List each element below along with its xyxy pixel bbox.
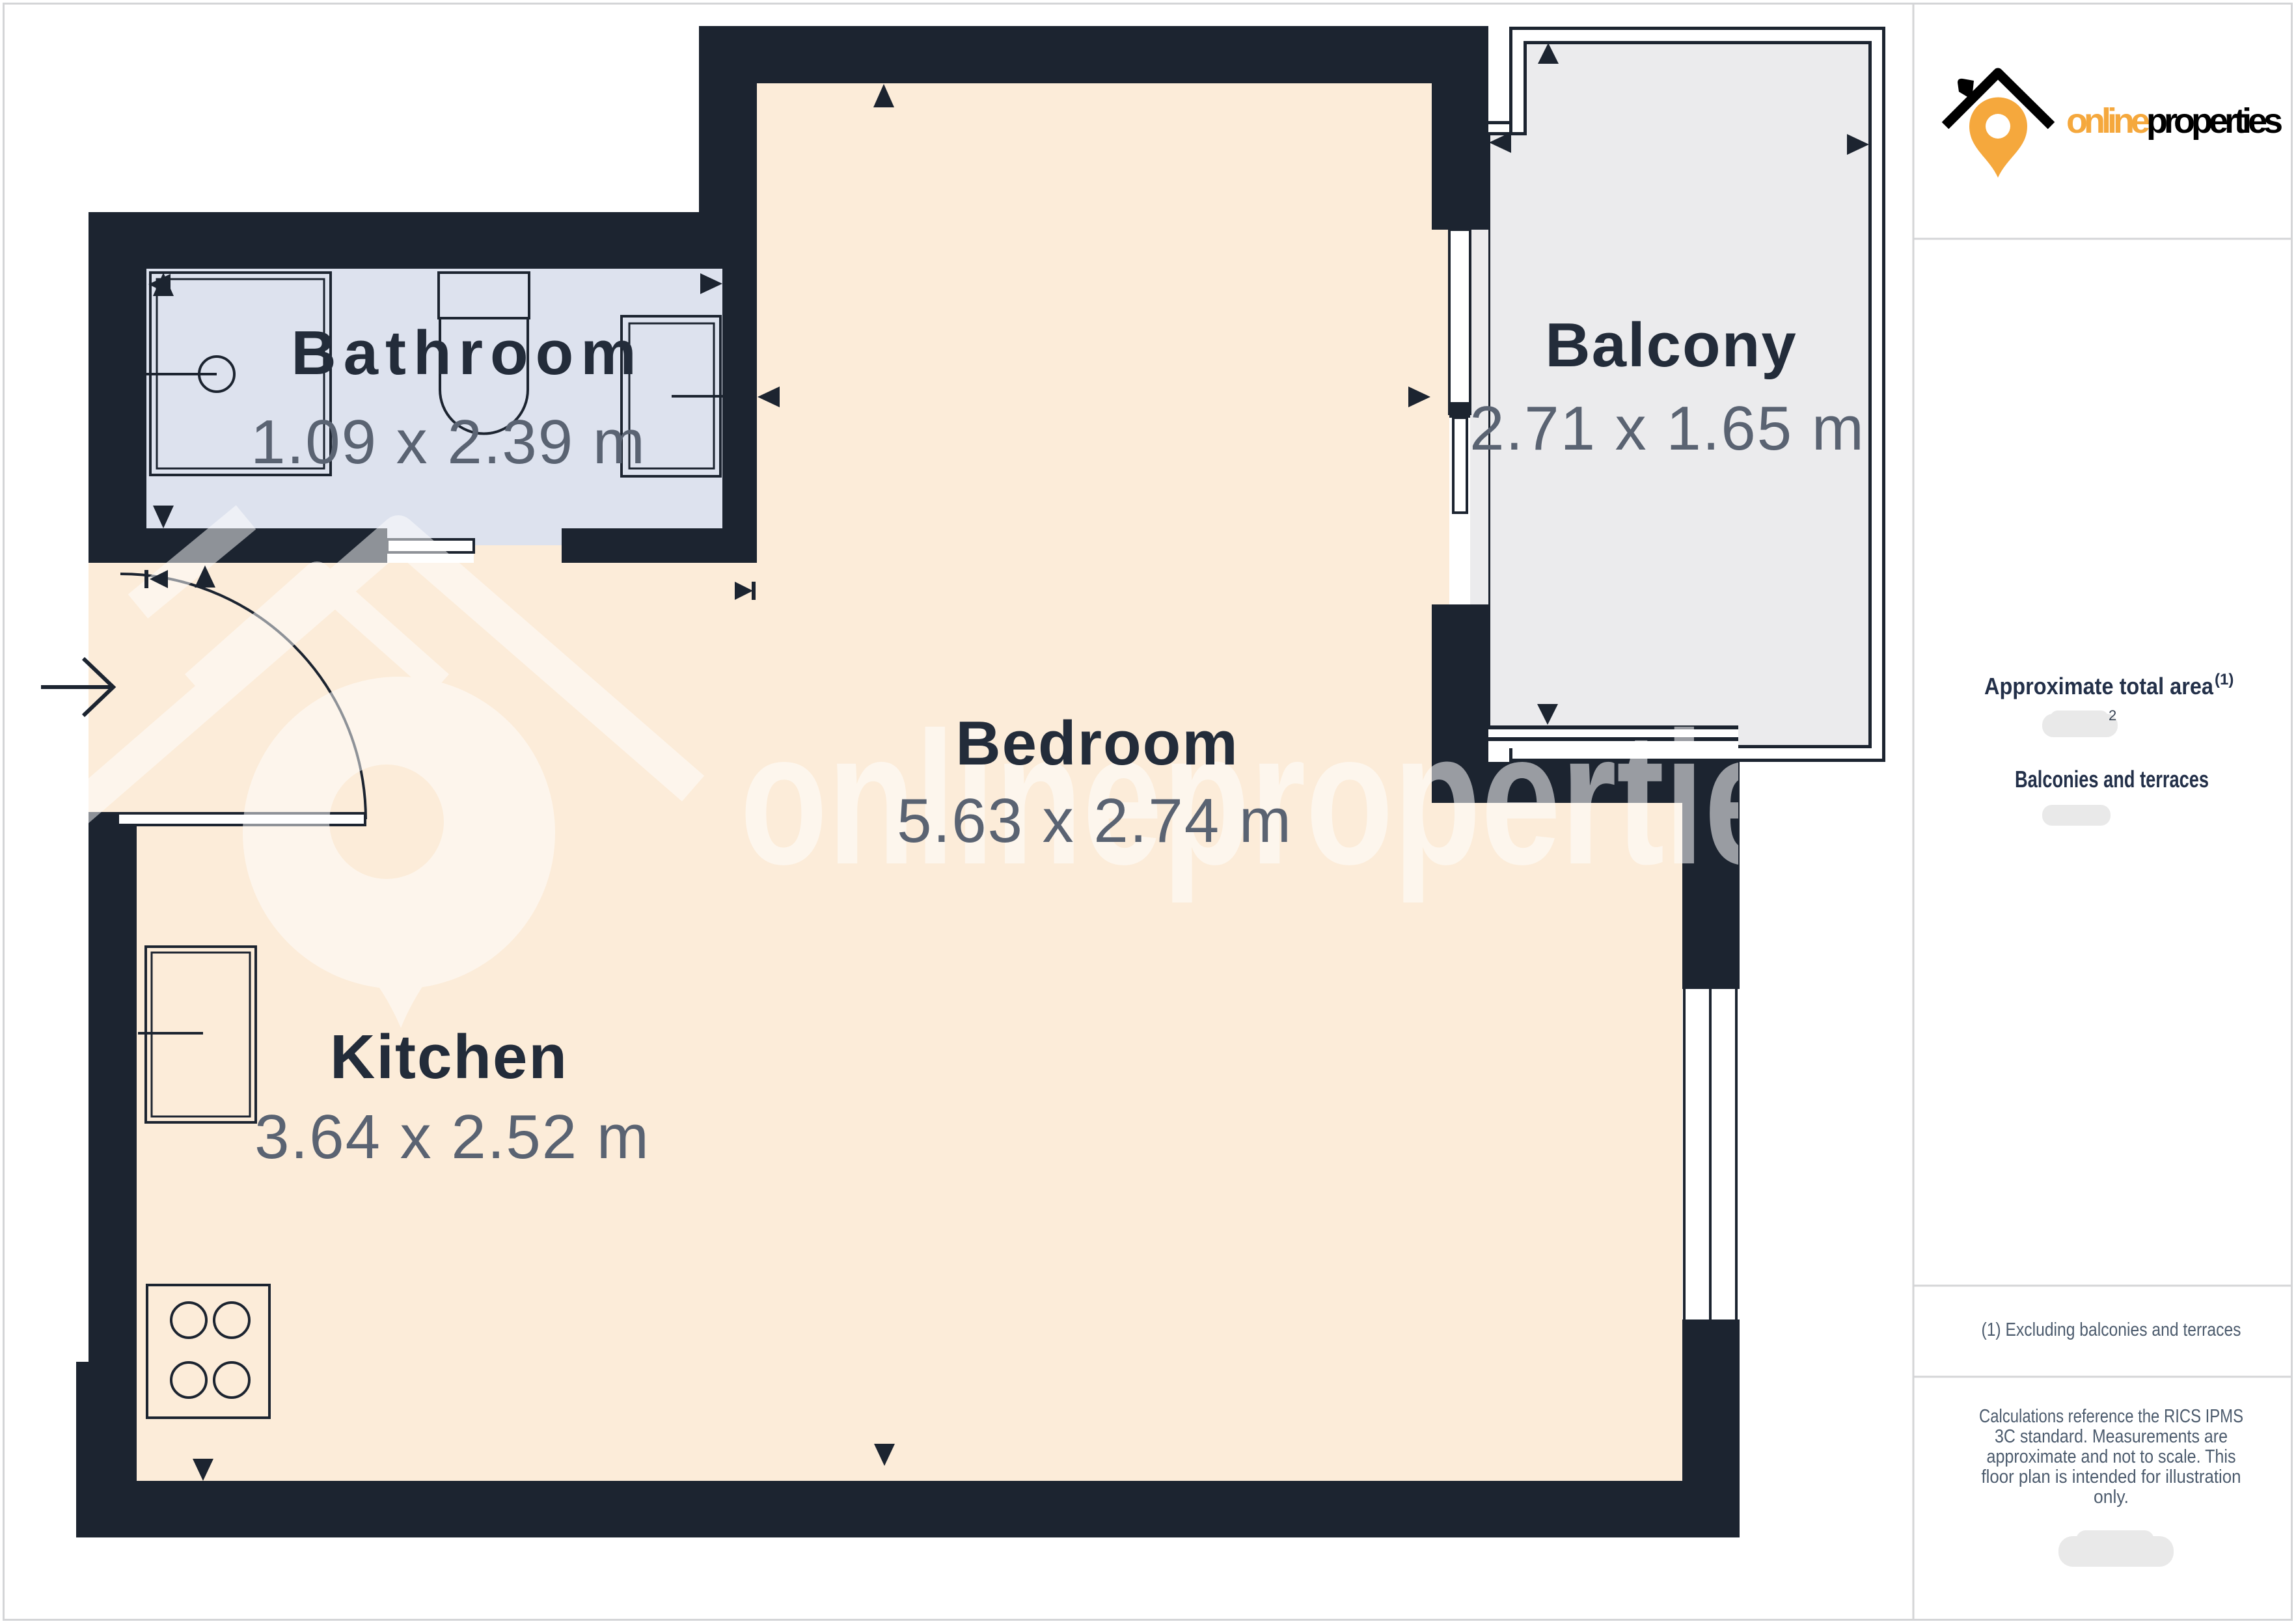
svg-text:5.63 x 2.74 m: 5.63 x 2.74 m [897, 786, 1292, 856]
svg-text:2.71 x 1.65 m: 2.71 x 1.65 m [1469, 394, 1865, 463]
svg-text:(1) Excluding balconies and te: (1) Excluding balconies and terraces [1982, 1319, 2241, 1340]
svg-text:Bathroom: Bathroom [291, 318, 643, 388]
svg-text:floor plan is intended for ill: floor plan is intended for illustration [1982, 1467, 2241, 1487]
svg-text:3C standard. Measurements are: 3C standard. Measurements are [1995, 1426, 2228, 1447]
svg-text:Approximate total area: Approximate total area [1984, 673, 2214, 699]
svg-text:Kitchen: Kitchen [330, 1022, 568, 1092]
svg-text:2: 2 [2109, 707, 2116, 724]
svg-text:(1): (1) [2215, 671, 2234, 688]
svg-text:Balconies and terraces: Balconies and terraces [2015, 766, 2209, 792]
svg-text:Bedroom: Bedroom [955, 709, 1238, 778]
svg-text:onlineproperties: onlineproperties [2066, 101, 2282, 141]
svg-text:1.09 x 2.39 m: 1.09 x 2.39 m [251, 407, 646, 477]
svg-text:3.64 x 2.52 m: 3.64 x 2.52 m [254, 1102, 650, 1172]
svg-text:only.: only. [2094, 1487, 2129, 1508]
svg-text:Balcony: Balcony [1545, 310, 1797, 380]
svg-text:approximate and not to scale.: approximate and not to scale. This [1987, 1446, 2236, 1467]
svg-text:Calculations reference the RIC: Calculations reference the RICS IPMS [1979, 1406, 2243, 1427]
